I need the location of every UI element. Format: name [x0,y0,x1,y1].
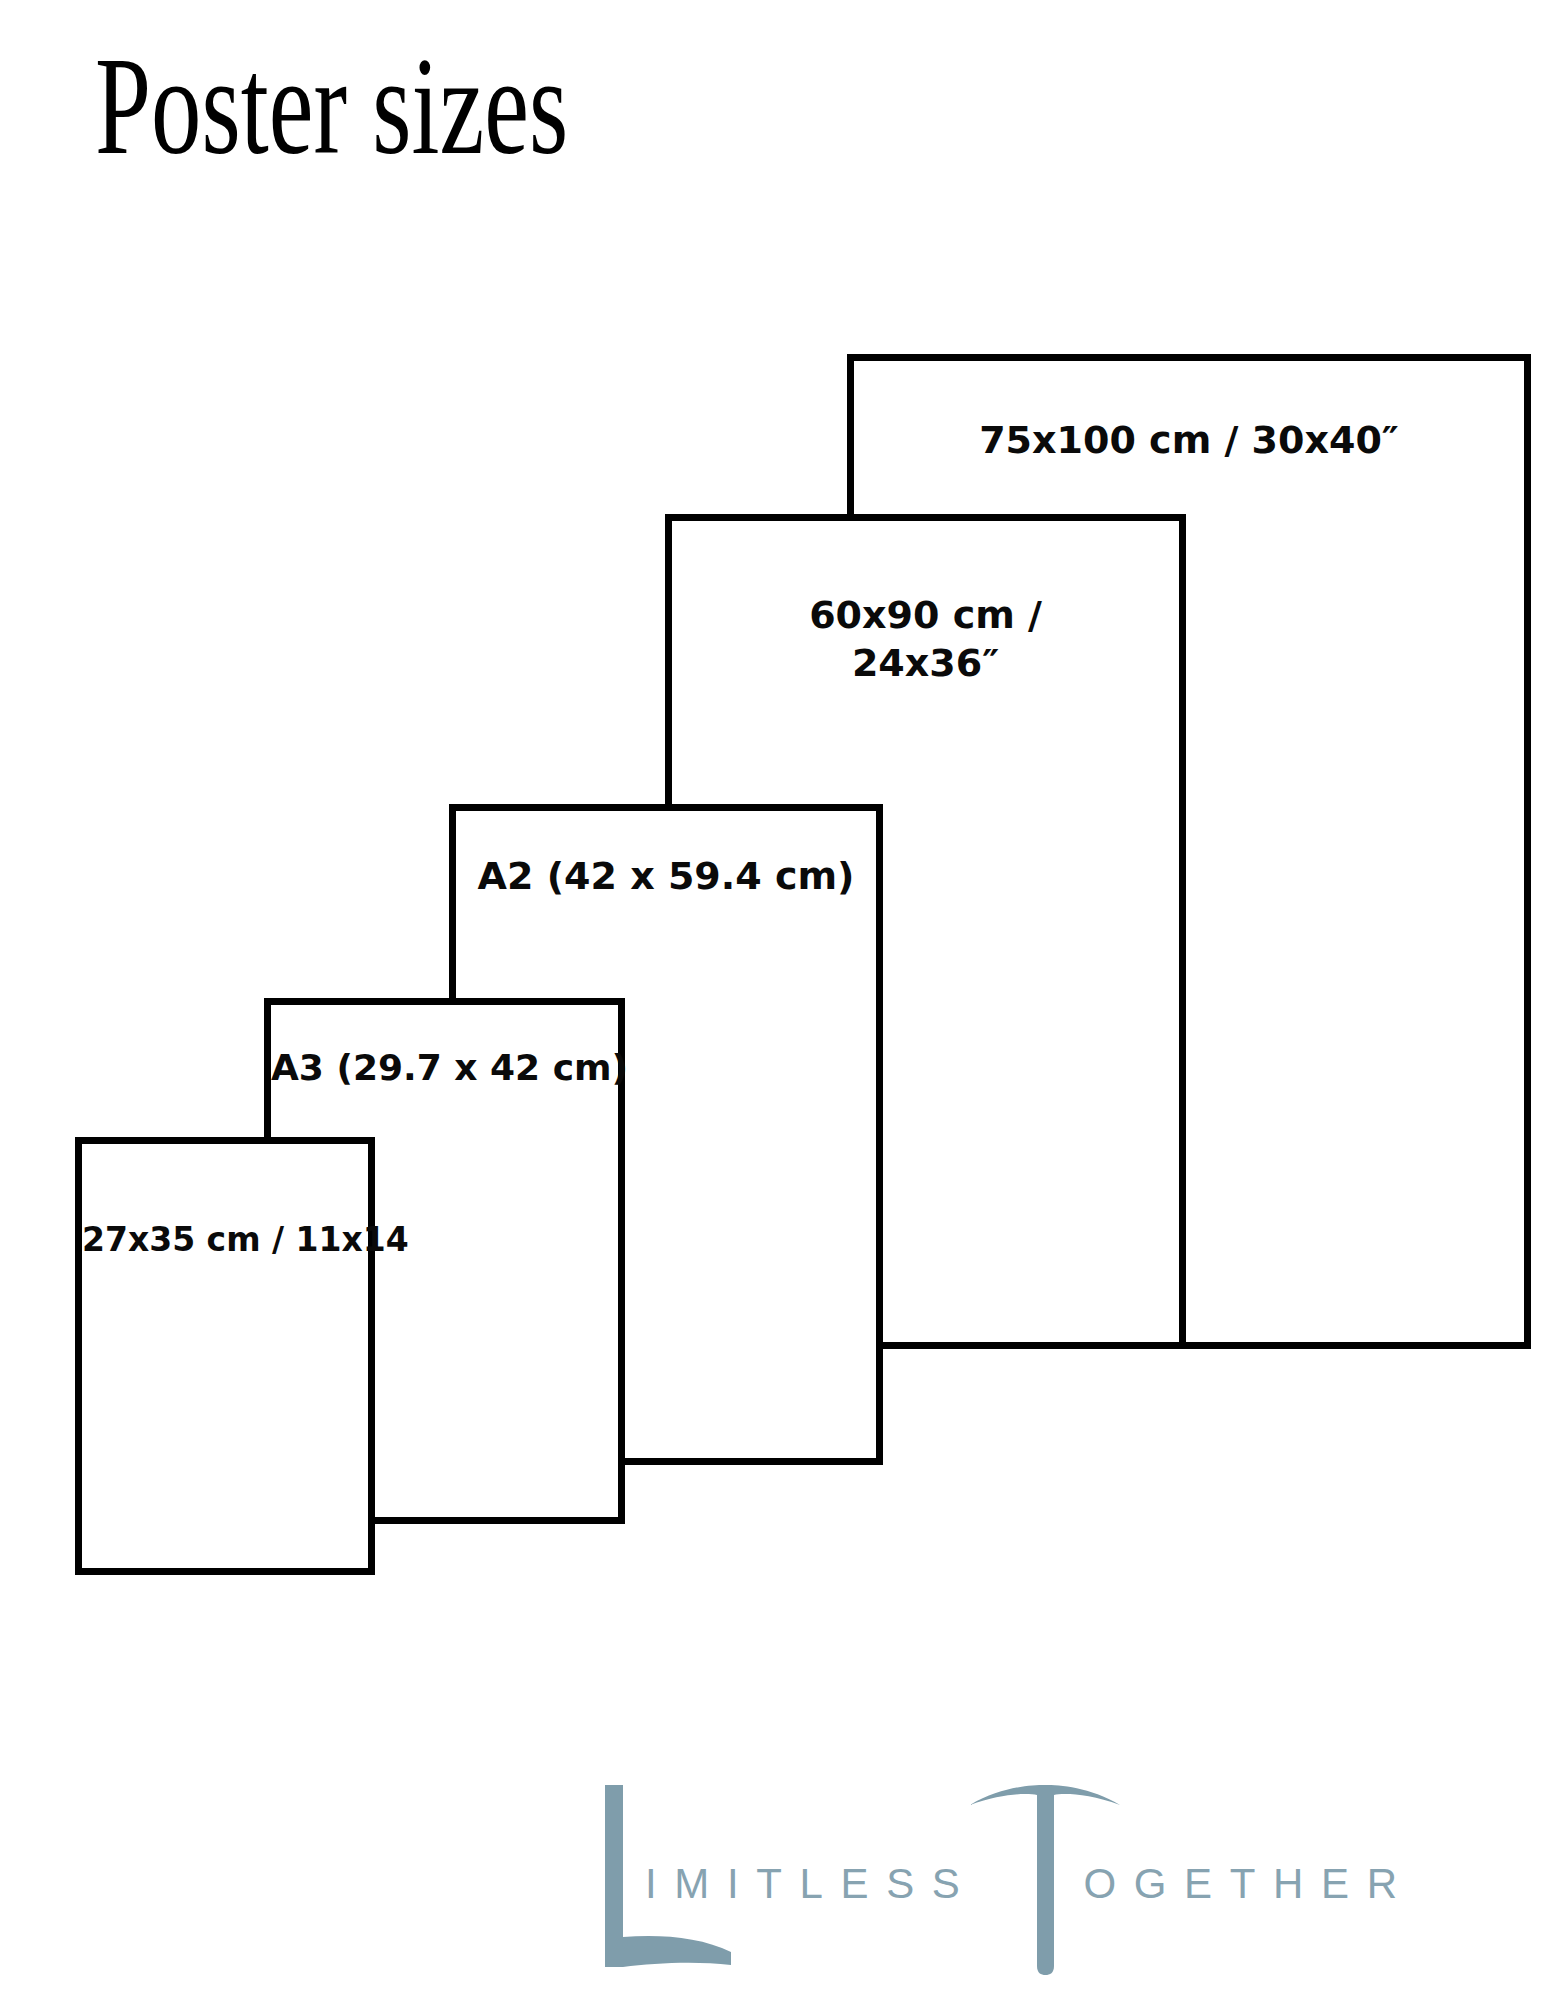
size-label-27x35: 27x35 cm / 11x14 [82,1223,368,1256]
poster-sizes-page: Poster sizes 75x100 cm / 30x40″ 60x90 cm… [0,0,1545,2000]
size-label-60x90-line2: 24x36″ [852,641,999,685]
page-title: Poster sizes [95,36,568,176]
logo-word-limitless: IMITLESS [645,1863,978,1905]
logo-word-together: OGETHER [1084,1863,1415,1905]
size-label-75x100: 75x100 cm / 30x40″ [854,421,1524,459]
size-label-60x90: 60x90 cm / 24x36″ [672,591,1179,687]
size-label-60x90-line1: 60x90 cm / [809,593,1042,637]
brand-logo: IMITLESS OGETHER [605,1783,1415,1975]
size-label-a3: A3 (29.7 x 42 cm) [271,1050,618,1086]
size-label-a2: A2 (42 x 59.4 cm) [456,857,876,895]
size-box-27x35: 27x35 cm / 11x14 [75,1137,375,1575]
